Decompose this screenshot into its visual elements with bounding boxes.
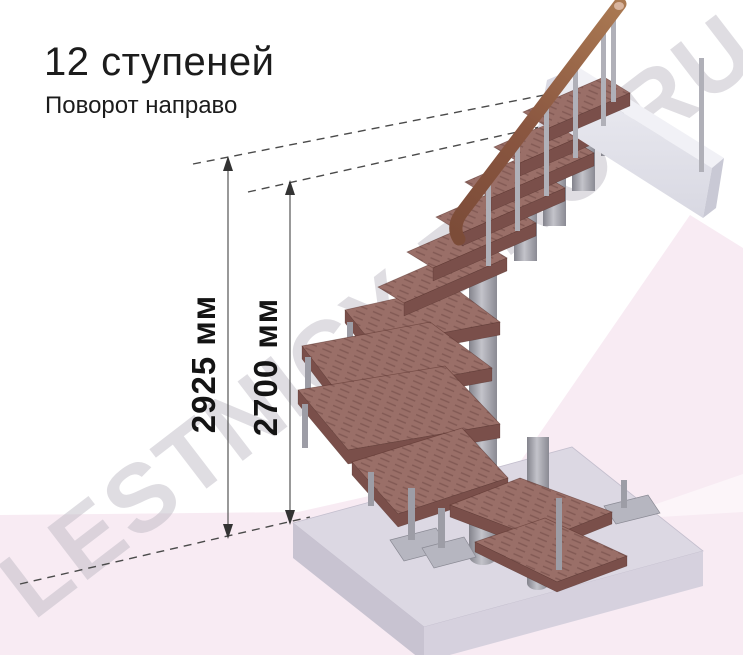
baluster: [611, 16, 616, 102]
staircase-3d: [298, 2, 724, 592]
support-post: [556, 498, 562, 570]
support-post: [302, 404, 308, 448]
dimension-line-2925: [223, 156, 233, 539]
landing-newel-post: [699, 58, 704, 172]
staircase-render: [0, 0, 743, 655]
support-post: [438, 508, 445, 548]
support-post: [408, 488, 415, 540]
support-post: [368, 472, 374, 506]
staircase-product-image: LESTNICY-PRO.RU: [0, 0, 743, 655]
support-post: [621, 480, 627, 508]
handrail-end-cap: [614, 2, 624, 10]
ground-level-dashed-line: [20, 517, 310, 584]
support-post: [305, 357, 311, 393]
base-plate: [604, 495, 660, 524]
dimension-line-2700: [285, 180, 295, 525]
arrow-down-icon: [223, 524, 233, 539]
